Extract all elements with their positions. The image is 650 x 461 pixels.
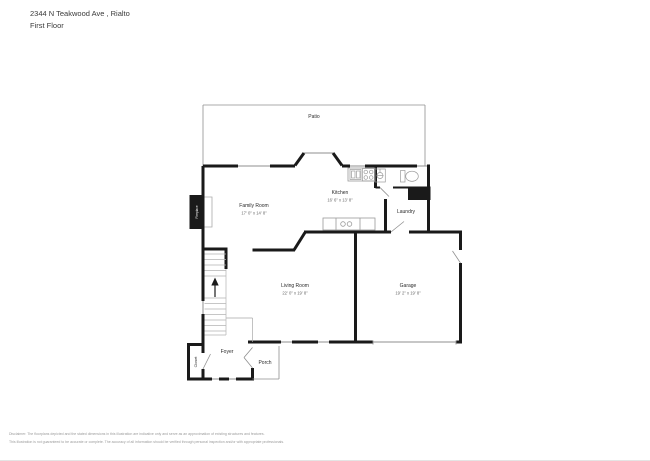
fireplace-label: Fireplace [195, 205, 199, 218]
four-burner-stove-icon [363, 169, 375, 182]
disclaimer: Disclaimer: The floorplans depicted and … [9, 431, 284, 446]
wall-mass-block [408, 187, 431, 201]
living-room-dims: 22' 0" x 19' 8" [282, 290, 307, 295]
patio-label: Patio [308, 114, 319, 120]
closet-label: Closet [194, 356, 198, 367]
hearth-outline [205, 197, 213, 227]
floor-plan-page: 2344 N Teakwood Ave , Rialto First Floor [0, 0, 650, 461]
kitchen-label: Kitchen [332, 190, 349, 196]
floor-plan-drawing [0, 0, 650, 460]
toilet-icon [401, 171, 419, 183]
foyer-label: Foyer [221, 349, 234, 355]
garage-label: Garage [400, 283, 417, 289]
porch-label: Porch [258, 360, 271, 366]
foyer-boundary-line [226, 318, 253, 342]
garage-dims: 19' 2" x 19' 8" [395, 290, 420, 295]
family-room-dims: 17' 0" x 14' 8" [241, 210, 266, 215]
garage-door-opening [373, 341, 456, 345]
living-room-label: Living Room [281, 283, 309, 289]
kitchen-island [323, 218, 375, 230]
laundry-label: Laundry [397, 209, 415, 215]
stairs-up-arrow-icon [211, 278, 218, 298]
double-bowl-sink-icon [350, 170, 361, 180]
disclaimer-line-2: This illustration is not guaranteed to b… [9, 439, 284, 447]
kitchen-dims: 16' 6" x 13' 8" [327, 197, 352, 202]
disclaimer-line-1: Disclaimer: The floorplans depicted and … [9, 431, 284, 439]
family-room-label: Family Room [239, 203, 268, 209]
